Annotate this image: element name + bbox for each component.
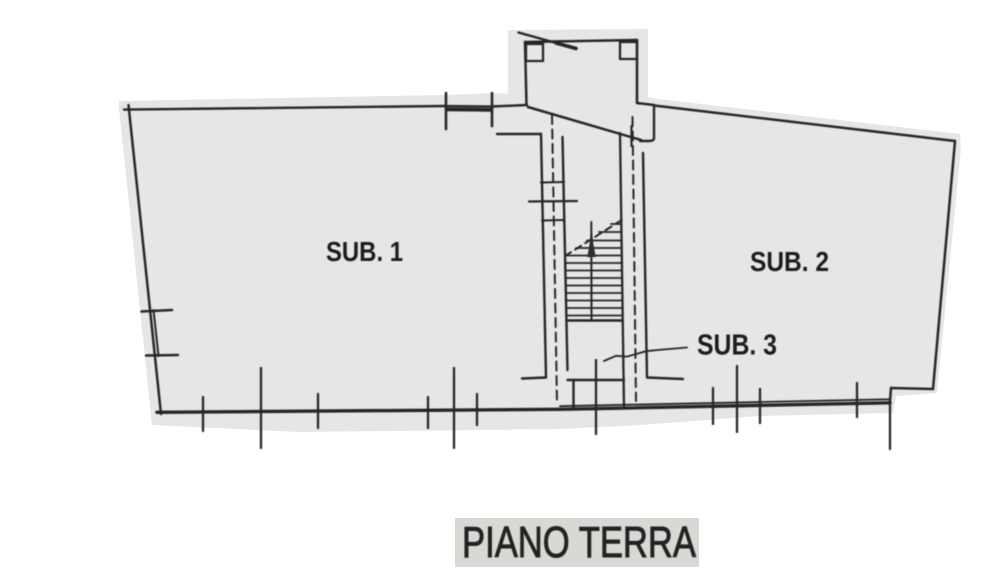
svg-text:PIANO TERRA: PIANO TERRA	[462, 518, 697, 567]
svg-text:SUB. 3: SUB. 3	[697, 330, 777, 362]
svg-text:SUB. 2: SUB. 2	[750, 246, 829, 277]
svg-text:SUB. 1: SUB. 1	[326, 236, 403, 267]
